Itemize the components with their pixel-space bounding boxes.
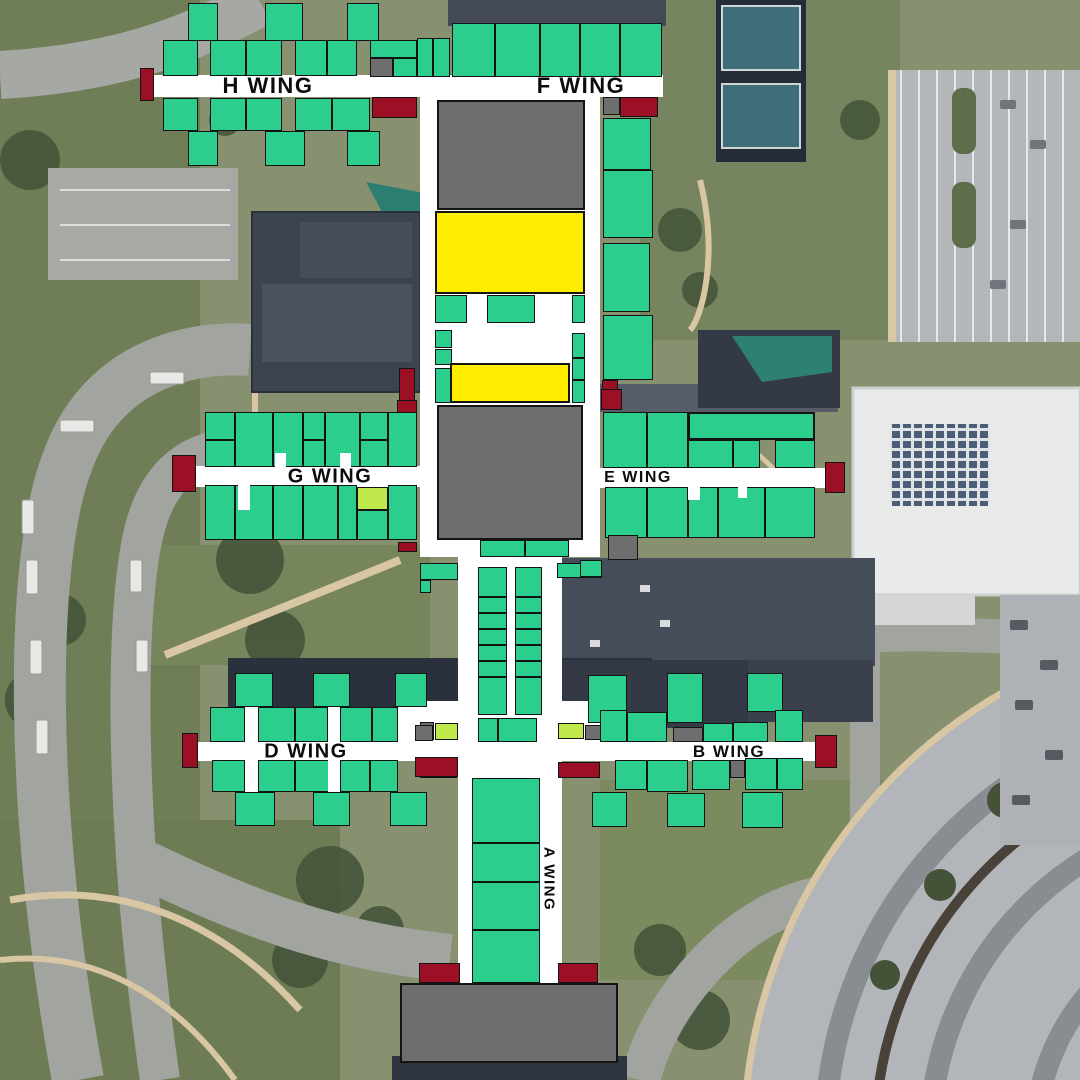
room-green bbox=[303, 412, 325, 440]
room-green bbox=[313, 673, 350, 707]
wing-label-g: G WING bbox=[288, 466, 373, 489]
room-green bbox=[472, 930, 540, 983]
room-chartreuse bbox=[435, 723, 458, 740]
room-green bbox=[478, 597, 507, 613]
room-green bbox=[615, 760, 647, 790]
room-green bbox=[515, 645, 542, 661]
room-red bbox=[558, 963, 598, 983]
room-green bbox=[420, 580, 431, 593]
campus-map: H WINGF WINGG WINGE WINGD WINGB WINGA WI… bbox=[0, 0, 1080, 1080]
room-green bbox=[487, 295, 535, 323]
room-green bbox=[515, 661, 542, 677]
room-green bbox=[417, 38, 433, 77]
room-green bbox=[265, 3, 303, 41]
room-red bbox=[415, 757, 458, 777]
corridor bbox=[688, 487, 700, 500]
room-green bbox=[388, 485, 417, 540]
room-gray bbox=[603, 97, 620, 115]
corridor bbox=[328, 707, 340, 742]
room-green bbox=[747, 673, 783, 712]
room-green bbox=[332, 98, 370, 131]
room-green bbox=[265, 131, 305, 166]
room-green bbox=[210, 40, 246, 76]
room-red bbox=[372, 97, 417, 118]
corridor bbox=[275, 453, 286, 467]
room-green bbox=[572, 358, 585, 380]
room-gray bbox=[415, 725, 433, 741]
room-green bbox=[210, 707, 245, 742]
room-green bbox=[212, 760, 245, 792]
room-green bbox=[688, 412, 815, 440]
room-green bbox=[515, 677, 542, 715]
room-green bbox=[478, 629, 507, 645]
room-green bbox=[540, 23, 580, 77]
room-green bbox=[603, 118, 651, 170]
room-yellow bbox=[450, 363, 570, 403]
room-green bbox=[340, 760, 370, 792]
room-green bbox=[360, 440, 388, 467]
room-green bbox=[313, 792, 350, 826]
room-green bbox=[525, 540, 569, 557]
room-green bbox=[775, 710, 803, 742]
room-green bbox=[347, 131, 380, 166]
room-green bbox=[472, 882, 540, 930]
wing-label-d: D WING bbox=[264, 741, 347, 764]
room-green bbox=[295, 40, 327, 76]
wing-label-e: E WING bbox=[604, 469, 672, 487]
room-green bbox=[603, 243, 650, 312]
room-green bbox=[258, 760, 295, 792]
room-green bbox=[340, 707, 372, 742]
room-gray bbox=[730, 760, 745, 778]
room-chartreuse bbox=[357, 487, 388, 510]
room-green bbox=[478, 567, 507, 597]
room-green bbox=[390, 792, 427, 826]
room-green bbox=[478, 645, 507, 661]
room-green bbox=[338, 485, 357, 540]
room-red bbox=[182, 733, 198, 768]
room-green bbox=[620, 23, 662, 77]
room-green bbox=[295, 707, 328, 742]
room-green bbox=[603, 412, 647, 468]
room-green bbox=[580, 560, 602, 577]
room-gray bbox=[370, 58, 393, 77]
room-gray bbox=[673, 727, 703, 742]
room-green bbox=[742, 792, 783, 828]
room-green bbox=[303, 485, 338, 540]
room-red bbox=[397, 400, 417, 413]
room-green bbox=[420, 563, 458, 580]
room-green bbox=[515, 629, 542, 645]
room-green bbox=[692, 760, 730, 790]
room-green bbox=[580, 23, 620, 77]
room-green bbox=[572, 333, 585, 358]
room-green bbox=[370, 760, 398, 792]
room-chartreuse bbox=[558, 723, 584, 739]
room-red bbox=[398, 542, 417, 552]
room-green bbox=[295, 98, 332, 131]
room-green bbox=[273, 485, 303, 540]
wing-label-b: B WING bbox=[693, 742, 765, 762]
room-green bbox=[395, 673, 427, 707]
room-green bbox=[235, 412, 273, 467]
room-red bbox=[601, 389, 622, 410]
room-green bbox=[603, 315, 653, 380]
room-green bbox=[777, 758, 803, 790]
room-gray bbox=[608, 535, 638, 560]
room-green bbox=[235, 673, 273, 707]
room-green bbox=[246, 40, 282, 76]
room-green bbox=[592, 792, 627, 827]
room-green bbox=[495, 23, 540, 77]
room-green bbox=[372, 707, 398, 742]
corridor bbox=[328, 760, 340, 792]
room-green bbox=[515, 567, 542, 597]
corridor bbox=[238, 485, 250, 510]
room-green bbox=[205, 440, 235, 467]
room-red bbox=[620, 97, 658, 117]
room-green bbox=[435, 330, 452, 348]
room-green bbox=[388, 412, 417, 467]
room-green bbox=[478, 718, 498, 742]
room-green bbox=[765, 487, 815, 538]
room-green bbox=[627, 712, 667, 742]
room-green bbox=[472, 843, 540, 882]
room-green bbox=[452, 23, 495, 77]
room-green bbox=[258, 707, 295, 742]
room-green bbox=[603, 170, 653, 238]
room-green bbox=[667, 673, 703, 723]
room-green bbox=[246, 98, 282, 131]
room-green bbox=[205, 412, 235, 440]
room-green bbox=[188, 3, 218, 41]
corridor bbox=[245, 707, 258, 742]
room-green bbox=[205, 485, 235, 540]
room-green bbox=[733, 440, 760, 468]
room-green bbox=[515, 597, 542, 613]
room-red bbox=[419, 963, 460, 983]
room-red bbox=[172, 455, 196, 492]
wing-label-h: H WING bbox=[223, 73, 314, 99]
corridor bbox=[738, 487, 747, 498]
room-gray bbox=[437, 100, 585, 210]
room-red bbox=[815, 735, 837, 768]
room-gray bbox=[400, 983, 618, 1063]
room-green bbox=[347, 3, 379, 41]
room-green bbox=[370, 40, 417, 58]
room-green bbox=[163, 40, 198, 76]
corridor bbox=[245, 760, 258, 792]
room-green bbox=[303, 440, 325, 467]
room-green bbox=[703, 723, 733, 742]
room-green bbox=[393, 58, 417, 77]
room-green bbox=[498, 718, 537, 742]
room-green bbox=[478, 613, 507, 629]
room-green bbox=[572, 295, 585, 323]
wing-label-f: F WING bbox=[537, 73, 625, 99]
room-green bbox=[688, 440, 733, 468]
room-red bbox=[825, 462, 845, 493]
room-green bbox=[600, 710, 627, 742]
room-green bbox=[647, 760, 688, 792]
room-green bbox=[433, 38, 450, 77]
room-green bbox=[480, 540, 525, 557]
room-red bbox=[140, 68, 154, 101]
room-green bbox=[647, 487, 688, 538]
room-gray bbox=[437, 405, 583, 540]
room-green bbox=[647, 412, 688, 468]
room-green bbox=[478, 661, 507, 677]
room-green bbox=[572, 380, 585, 403]
wing-label-a: A WING bbox=[541, 847, 558, 911]
room-green bbox=[515, 613, 542, 629]
room-green bbox=[745, 758, 777, 790]
room-green bbox=[188, 131, 218, 166]
room-yellow bbox=[435, 211, 585, 294]
room-green bbox=[357, 510, 388, 540]
room-green bbox=[605, 487, 647, 538]
room-green bbox=[163, 98, 198, 131]
room-green bbox=[478, 677, 507, 715]
room-green bbox=[327, 40, 357, 76]
room-green bbox=[775, 440, 815, 468]
room-red bbox=[558, 762, 600, 778]
room-green bbox=[210, 98, 246, 131]
room-green bbox=[472, 778, 540, 843]
room-green bbox=[733, 722, 768, 742]
room-green bbox=[667, 793, 705, 827]
floor-plan-layer: H WINGF WINGG WINGE WINGD WINGB WINGA WI… bbox=[0, 0, 1080, 1080]
room-green bbox=[435, 295, 467, 323]
room-green bbox=[360, 412, 388, 440]
room-green bbox=[235, 792, 275, 826]
